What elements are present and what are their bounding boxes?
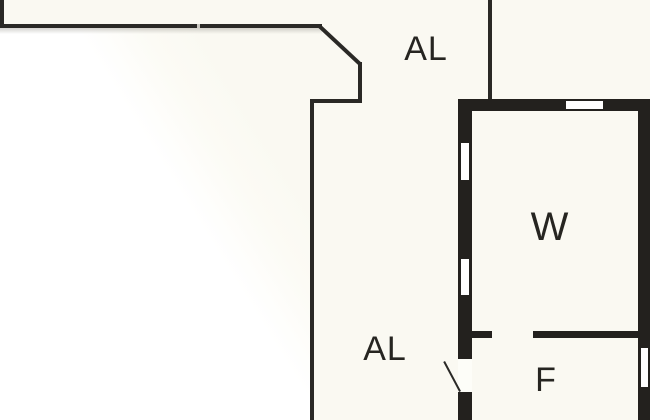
wall-step-vertical (358, 62, 362, 103)
window-left-upper (458, 143, 472, 180)
wall-joint-notch (197, 24, 200, 28)
window-top (566, 99, 603, 111)
wall-hall-left-vertical (310, 99, 314, 420)
wall-top-horizontal (0, 24, 322, 28)
room-label-hall-lower: AL (363, 332, 407, 366)
partition-wall-right (533, 331, 638, 338)
door-opening (458, 359, 472, 392)
room-label-w: W (531, 207, 570, 247)
partition-wall-left-stub (470, 331, 492, 338)
room-block-top-wall (458, 99, 650, 111)
wall-shadow (0, 28, 322, 34)
wall-hall-right-vertical (488, 0, 492, 101)
room-label-hall-upper: AL (404, 32, 448, 66)
wall-diagonal-corner (317, 24, 361, 66)
exterior-region (0, 28, 310, 420)
floor-plan-canvas: AL AL W F (0, 0, 650, 420)
window-left-lower (458, 259, 472, 295)
wall-step-horizontal (310, 99, 362, 103)
window-right (638, 348, 650, 387)
room-label-f: F (535, 363, 557, 397)
